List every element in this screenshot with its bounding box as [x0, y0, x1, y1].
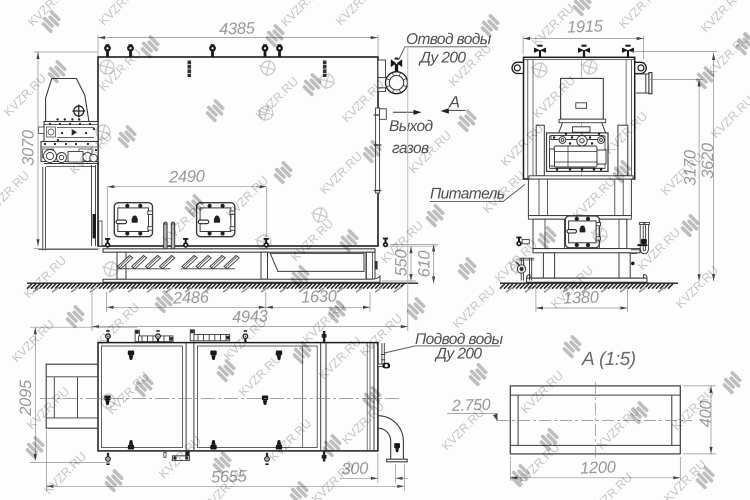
svg-text:А (1:5): А (1:5)	[581, 349, 636, 370]
svg-text:4385: 4385	[219, 19, 256, 38]
svg-text:610: 610	[416, 250, 434, 278]
svg-text:2490: 2490	[168, 167, 206, 186]
svg-text:1200: 1200	[580, 458, 617, 477]
svg-text:Ду 200: Ду 200	[434, 346, 482, 363]
svg-text:2095: 2095	[17, 379, 35, 417]
svg-text:А: А	[448, 94, 460, 112]
svg-text:3070: 3070	[20, 129, 38, 166]
svg-text:2486: 2486	[172, 288, 210, 307]
svg-text:1915: 1915	[567, 17, 604, 36]
svg-text:Выход: Выход	[389, 118, 434, 135]
svg-text:Ду 200: Ду 200	[418, 50, 466, 67]
